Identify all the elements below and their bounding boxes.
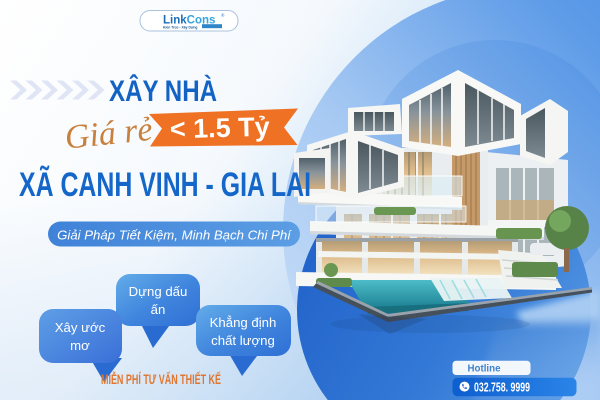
svg-text:Kiến Trúc - Xây Dựng: Kiến Trúc - Xây Dựng — [163, 26, 197, 30]
svg-text:Xây ước: Xây ước — [55, 320, 106, 335]
svg-text:mơ: mơ — [70, 338, 90, 353]
svg-text:chất lượng: chất lượng — [211, 333, 275, 348]
svg-text:< 1.5 Tỷ: < 1.5 Tỷ — [169, 112, 270, 145]
svg-text:Khẳng định: Khẳng định — [210, 315, 277, 330]
svg-text:XÃ CANH VINH - GIA LAI: XÃ CANH VINH - GIA LAI — [19, 166, 311, 204]
svg-text:ấn: ấn — [151, 302, 166, 317]
svg-text:Dựng dấu: Dựng dấu — [129, 284, 188, 299]
svg-text:Hotline: Hotline — [468, 363, 501, 374]
svg-text:032.758. 9999: 032.758. 9999 — [474, 380, 530, 395]
svg-text:XÂY NHÀ: XÂY NHÀ — [109, 74, 217, 108]
svg-text:Giải Pháp Tiết Kiệm, Minh Bạch: Giải Pháp Tiết Kiệm, Minh Bạch Chi Phí — [57, 228, 292, 243]
svg-text:MIỄN PHÍ TƯ VẤN THIẾT KẾ: MIỄN PHÍ TƯ VẤN THIẾT KẾ — [101, 372, 221, 387]
